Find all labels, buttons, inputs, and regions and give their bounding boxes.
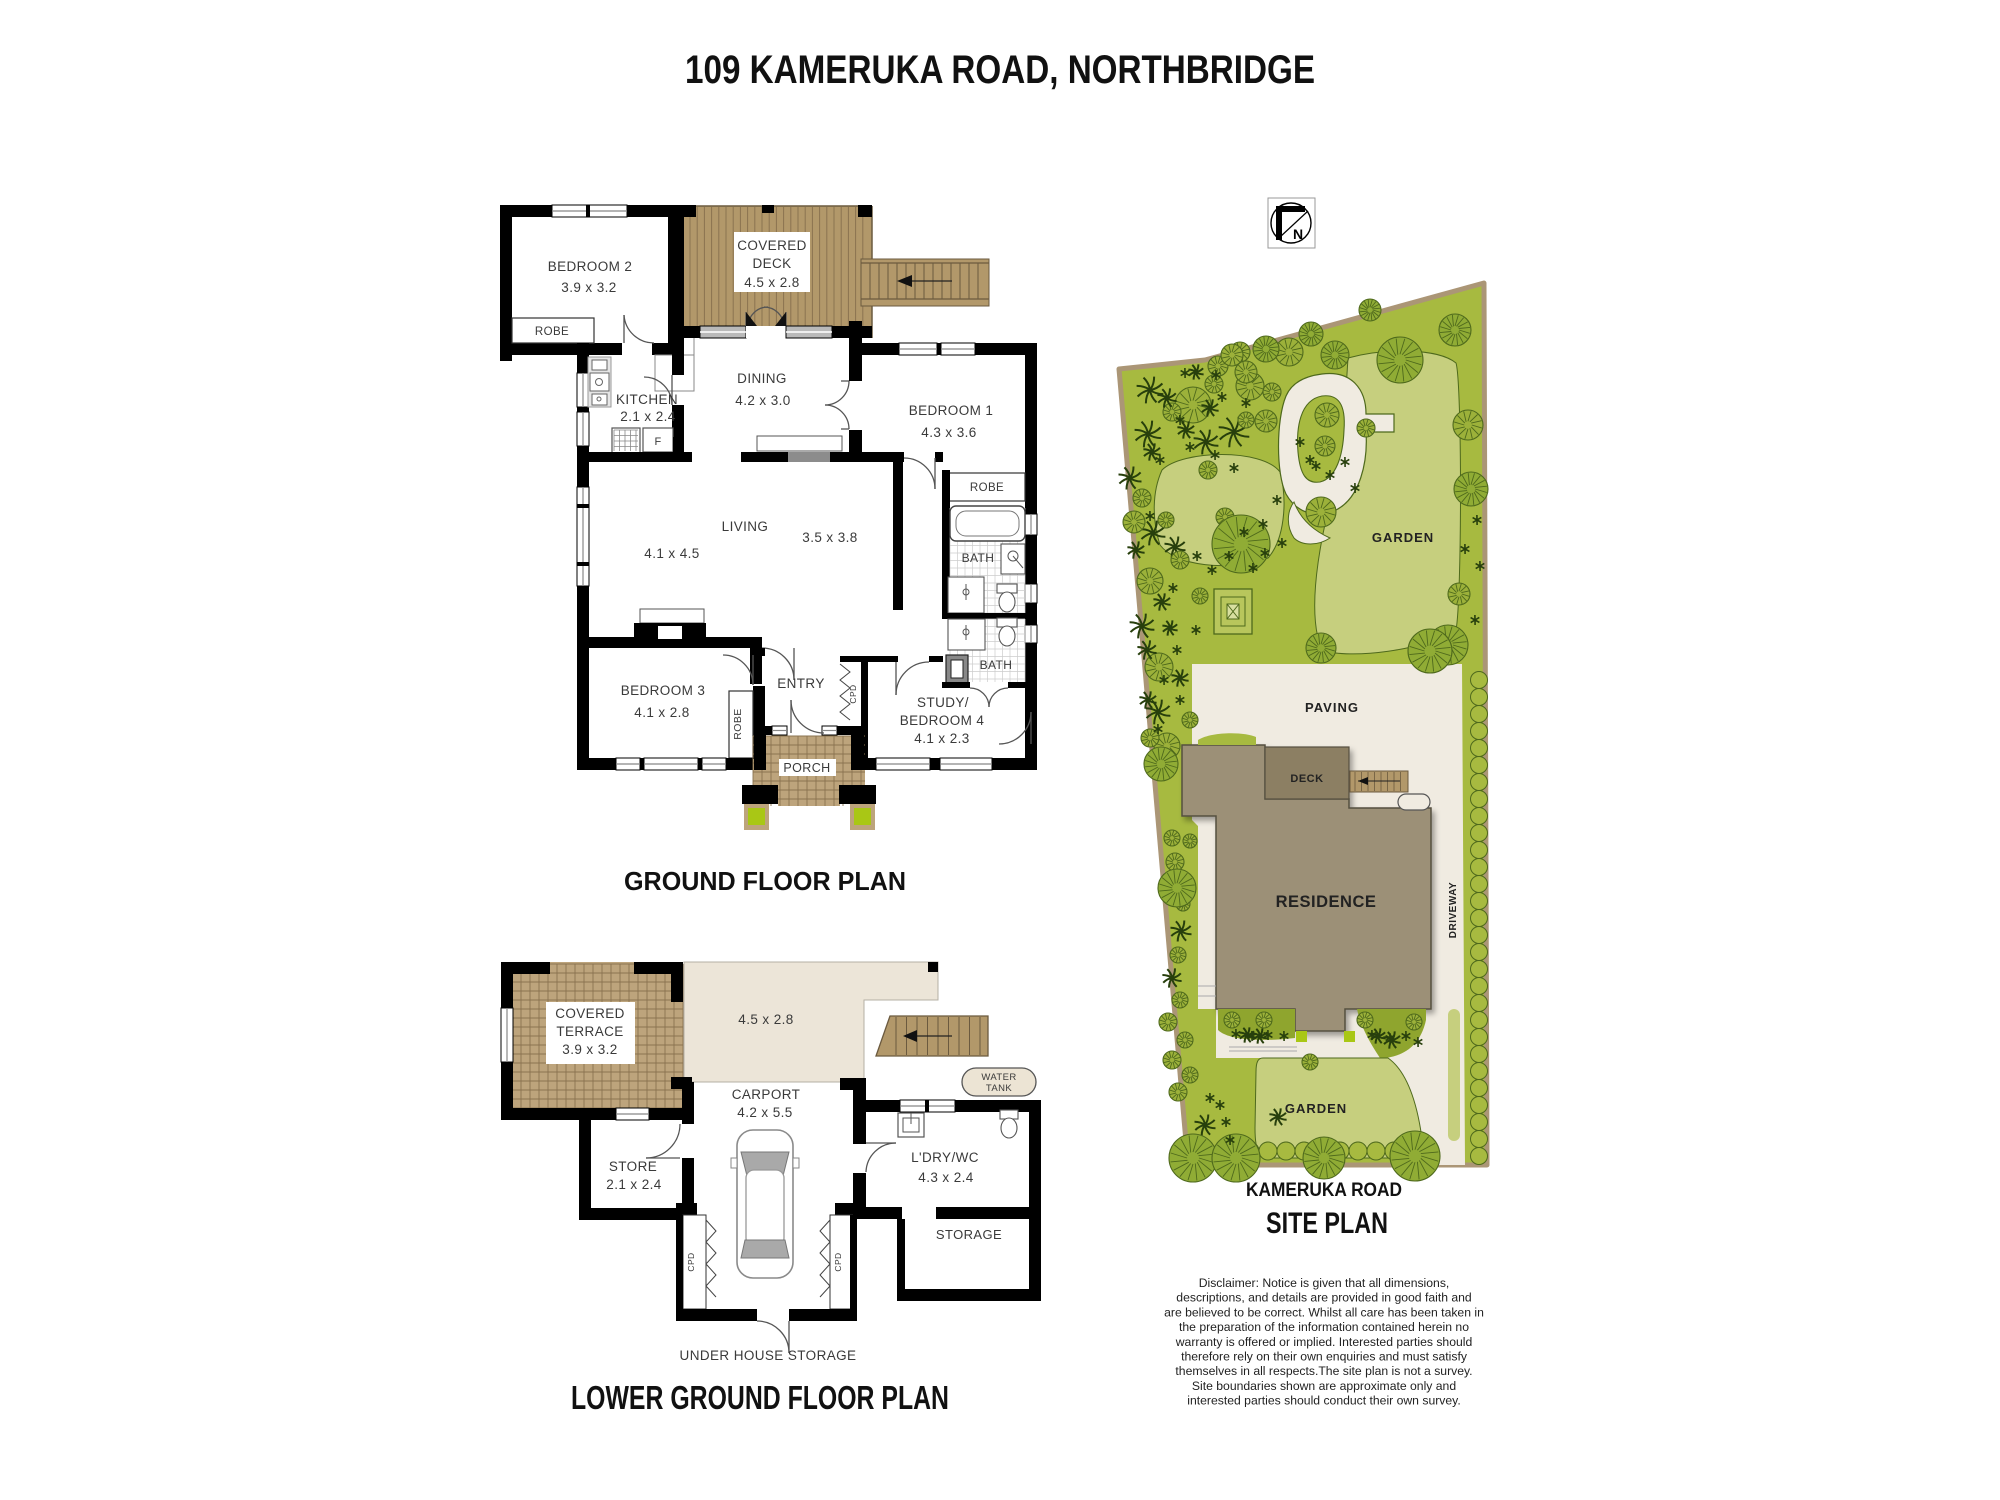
svg-text:DECK: DECK: [1290, 773, 1323, 785]
svg-text:CARPORT: CARPORT: [732, 1087, 801, 1102]
svg-text:KITCHEN: KITCHEN: [616, 392, 678, 407]
svg-text:BEDROOM 3: BEDROOM 3: [621, 683, 706, 698]
svg-text:therefore rely on their own en: therefore rely on their own enquiries an…: [1181, 1350, 1468, 1364]
svg-text:GARDEN: GARDEN: [1285, 1101, 1347, 1116]
svg-text:CPD: CPD: [833, 1252, 843, 1271]
svg-text:4.1 x 2.8: 4.1 x 2.8: [634, 705, 689, 720]
svg-text:CPD: CPD: [686, 1252, 696, 1271]
svg-text:4.2 x 3.0: 4.2 x 3.0: [735, 393, 790, 408]
svg-text:4.2 x 5.5: 4.2 x 5.5: [737, 1105, 792, 1120]
svg-text:LIVING: LIVING: [722, 519, 769, 534]
svg-text:4.1 x 2.3: 4.1 x 2.3: [914, 731, 969, 746]
svg-text:L'DRY/WC: L'DRY/WC: [911, 1150, 979, 1165]
svg-text:themselves in all respects.The: themselves in all respects.The site plan…: [1175, 1364, 1472, 1378]
svg-text:GARDEN: GARDEN: [1372, 530, 1434, 545]
svg-text:KAMERUKA ROAD: KAMERUKA ROAD: [1246, 1180, 1402, 1201]
svg-text:3.9 x 3.2: 3.9 x 3.2: [561, 280, 616, 295]
svg-text:109 KAMERUKA ROAD, NORTHBRIDGE: 109 KAMERUKA ROAD, NORTHBRIDGE: [685, 48, 1315, 92]
svg-text:COVERED: COVERED: [737, 238, 807, 253]
svg-text:BEDROOM 4: BEDROOM 4: [900, 713, 985, 728]
svg-text:ROBE: ROBE: [732, 708, 744, 739]
svg-text:2.1 x 2.4: 2.1 x 2.4: [606, 1177, 661, 1192]
svg-text:DECK: DECK: [752, 256, 791, 271]
svg-text:PAVING: PAVING: [1305, 700, 1359, 715]
svg-text:STUDY/: STUDY/: [917, 695, 969, 710]
svg-text:BATH: BATH: [962, 551, 995, 565]
svg-text:LOWER GROUND FLOOR PLAN: LOWER GROUND FLOOR PLAN: [571, 1379, 949, 1416]
svg-text:N: N: [1293, 226, 1303, 242]
svg-text:CPD: CPD: [848, 684, 858, 703]
svg-text:BEDROOM 2: BEDROOM 2: [548, 259, 633, 274]
svg-text:descriptions, and details are: descriptions, and details are provided i…: [1176, 1291, 1471, 1305]
svg-text:Disclaimer: Notice is given th: Disclaimer: Notice is given that all dim…: [1199, 1276, 1450, 1290]
svg-text:TANK: TANK: [986, 1083, 1012, 1094]
svg-text:DRIVEWAY: DRIVEWAY: [1448, 882, 1459, 938]
svg-text:the preparation of the informa: the preparation of the information conta…: [1179, 1320, 1469, 1334]
svg-text:ROBE: ROBE: [535, 326, 569, 338]
svg-text:3.5 x 3.8: 3.5 x 3.8: [802, 530, 857, 545]
svg-text:ENTRY: ENTRY: [777, 676, 825, 691]
svg-text:Site boundaries shown are appr: Site boundaries shown are approximate on…: [1192, 1379, 1456, 1393]
svg-text:4.1 x 4.5: 4.1 x 4.5: [644, 546, 699, 561]
svg-text:4.3 x 2.4: 4.3 x 2.4: [918, 1170, 973, 1185]
svg-text:warranty is offered or implied: warranty is offered or implied. Interest…: [1175, 1335, 1473, 1349]
svg-text:2.1 x 2.4: 2.1 x 2.4: [620, 409, 675, 424]
svg-text:COVERED: COVERED: [555, 1006, 625, 1021]
svg-text:GROUND FLOOR PLAN: GROUND FLOOR PLAN: [624, 866, 906, 896]
svg-text:are believed to be correct. Wh: are believed to be correct. Whilst all c…: [1164, 1305, 1484, 1319]
svg-text:BEDROOM 1: BEDROOM 1: [909, 403, 994, 418]
svg-text:4.5 x 2.8: 4.5 x 2.8: [744, 275, 799, 290]
svg-text:SITE PLAN: SITE PLAN: [1266, 1207, 1388, 1240]
svg-text:TERRACE: TERRACE: [556, 1024, 623, 1039]
svg-text:PORCH: PORCH: [783, 761, 830, 775]
svg-text:interested parties should cond: interested parties should conduct their …: [1187, 1394, 1460, 1408]
svg-text:STORAGE: STORAGE: [936, 1227, 1002, 1242]
svg-text:RESIDENCE: RESIDENCE: [1276, 893, 1377, 911]
svg-text:BATH: BATH: [980, 658, 1013, 672]
svg-text:UNDER HOUSE STORAGE: UNDER HOUSE STORAGE: [680, 1348, 857, 1363]
svg-text:3.9 x 3.2: 3.9 x 3.2: [562, 1042, 617, 1057]
svg-text:WATER: WATER: [981, 1072, 1016, 1083]
svg-text:4.5 x 2.8: 4.5 x 2.8: [738, 1012, 793, 1027]
svg-text:ROBE: ROBE: [970, 482, 1004, 494]
svg-text:F: F: [654, 436, 661, 448]
svg-text:DINING: DINING: [737, 371, 787, 386]
svg-text:STORE: STORE: [609, 1159, 657, 1174]
svg-text:4.3 x 3.6: 4.3 x 3.6: [921, 425, 976, 440]
